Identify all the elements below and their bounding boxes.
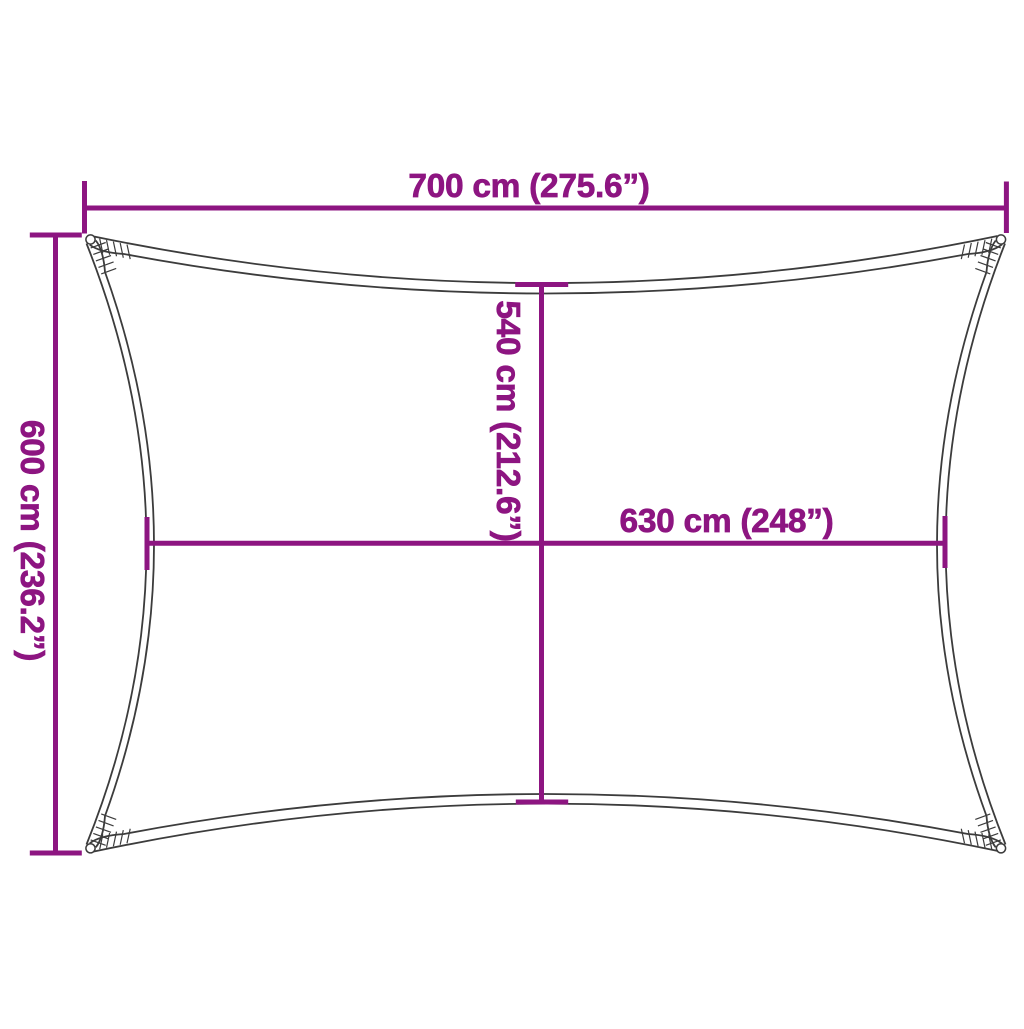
- svg-text:540 cm (212.6”): 540 cm (212.6”): [489, 300, 526, 541]
- svg-text:600 cm (236.2”): 600 cm (236.2”): [13, 420, 50, 661]
- svg-text:630 cm (248”): 630 cm (248”): [620, 503, 834, 540]
- svg-text:700 cm (275.6”): 700 cm (275.6”): [408, 168, 649, 205]
